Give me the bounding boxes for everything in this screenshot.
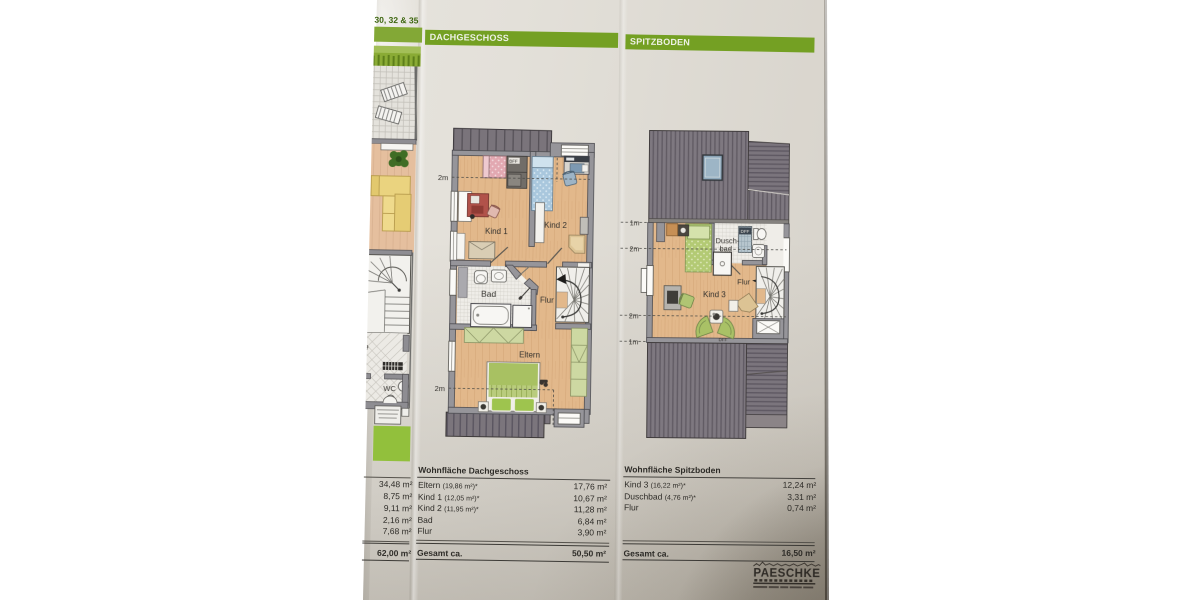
svg-text:DFF: DFF [719,337,728,342]
svg-text:2m: 2m [629,313,639,320]
svg-text:1m: 1m [630,220,640,227]
svg-text:Kind 3: Kind 3 [703,290,726,299]
svg-text:2m: 2m [629,246,639,253]
svg-text:DFF: DFF [741,229,750,234]
svg-text:Flur: Flur [737,277,751,286]
svg-text:1m: 1m [629,339,639,346]
svg-text:PAESCHKE: PAESCHKE [753,568,820,581]
